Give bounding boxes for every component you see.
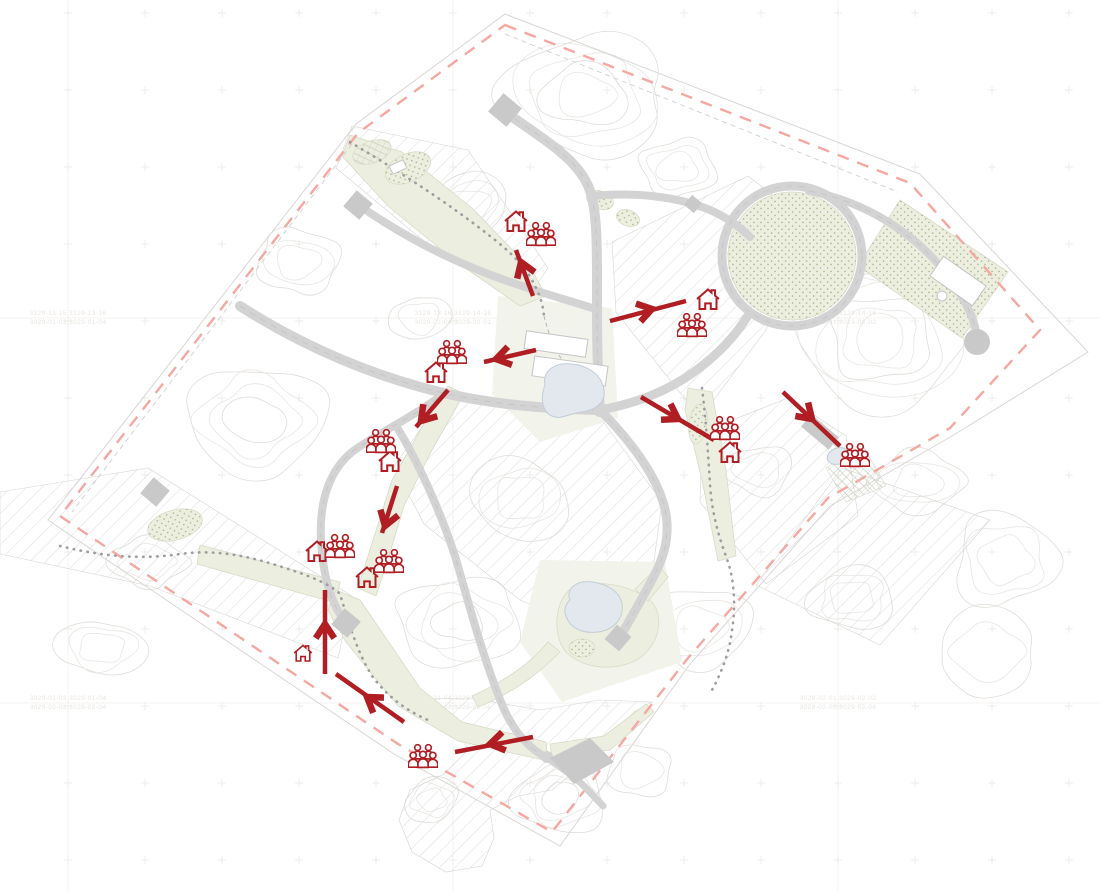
watermark-text: 3029-01-03 3029-01-04: [30, 695, 107, 702]
grid-cross: [603, 240, 611, 248]
grid-cross: [988, 856, 996, 864]
contour-line: [187, 372, 330, 481]
watermark-text: 3029-02-01 3029-02-02: [800, 695, 877, 702]
house-icon: [379, 452, 401, 472]
contour-line: [395, 577, 521, 668]
grid-cross: [449, 86, 457, 94]
people-group-icon: [408, 745, 437, 768]
grid-cross: [834, 779, 842, 787]
grid-cross: [141, 9, 149, 17]
contour-line: [422, 593, 498, 649]
grid-cross: [295, 86, 303, 94]
grid-cross: [141, 86, 149, 94]
people-group-icon: [325, 535, 354, 558]
grid-cross: [526, 9, 534, 17]
grid-cross: [834, 86, 842, 94]
grid-cross: [988, 625, 996, 633]
watermark-text: 3029-02-05 3029-02-06: [800, 704, 877, 711]
grid-cross: [680, 471, 688, 479]
grid-cross: [757, 9, 765, 17]
grid-cross: [218, 9, 226, 17]
grid-cross: [141, 856, 149, 864]
grid-cross: [141, 163, 149, 171]
planting-patch-texture: [614, 206, 642, 229]
grid-cross: [680, 856, 688, 864]
grid-cross: [911, 625, 919, 633]
contour-line: [191, 370, 318, 468]
grid-cross: [372, 240, 380, 248]
planting-circle-texture: [728, 192, 856, 320]
grid-cross: [218, 779, 226, 787]
people-group-icon: [526, 223, 555, 246]
contour-line: [857, 313, 903, 363]
grid-cross: [64, 625, 72, 633]
grid-cross: [1065, 856, 1073, 864]
grid-cross: [218, 163, 226, 171]
grid-cross: [834, 394, 842, 402]
grid-cross: [757, 856, 765, 864]
site-plan-drawing: 3129-13-15 3129-13-163029-01-03 3029-01-…: [0, 0, 1100, 891]
grid-cross: [141, 625, 149, 633]
people-group-icon: [437, 341, 466, 364]
grid-cross: [1065, 548, 1073, 556]
grid-cross: [603, 9, 611, 17]
contour-line: [656, 151, 699, 181]
watermark-text: 3029-01-04 3029-02-01: [415, 319, 492, 326]
grid-cross: [295, 9, 303, 17]
contour-line: [977, 535, 1035, 586]
grid-cross: [680, 548, 688, 556]
grid-cross: [449, 9, 457, 17]
grid-cross: [64, 779, 72, 787]
grid-cross: [1065, 9, 1073, 17]
grid-cross: [988, 394, 996, 402]
site-plan-canvas: 3129-13-15 3129-13-163029-01-03 3029-01-…: [0, 0, 1100, 891]
grid-cross: [64, 394, 72, 402]
grid-cross: [449, 625, 457, 633]
contour-line: [222, 397, 287, 443]
house-icon: [294, 645, 312, 661]
grid-cross: [1065, 779, 1073, 787]
watermark-text: 3029-02-03 3029-02-04: [30, 704, 107, 711]
grid-cross: [372, 471, 380, 479]
contour-line: [492, 31, 659, 160]
culdesac-circle: [964, 329, 990, 355]
road-junction: [541, 751, 553, 763]
grid-cross: [218, 86, 226, 94]
grid-cross: [911, 86, 919, 94]
grid-cross: [295, 471, 303, 479]
grid-cross: [988, 779, 996, 787]
setback-line: [72, 144, 352, 512]
grid-cross: [141, 240, 149, 248]
grid-cross: [757, 86, 765, 94]
grid-cross: [372, 394, 380, 402]
grid-cross: [64, 9, 72, 17]
grid-cross: [1065, 394, 1073, 402]
contour-line: [646, 146, 709, 190]
grid-cross: [603, 856, 611, 864]
grid-cross: [680, 9, 688, 17]
grid-cross: [295, 163, 303, 171]
grid-cross: [1065, 471, 1073, 479]
contour-line: [257, 227, 342, 295]
watermark-text: 3129-13-15 3129-13-16: [30, 310, 107, 317]
contour-line: [843, 308, 916, 368]
grid-cross: [911, 163, 919, 171]
grid-cross: [64, 471, 72, 479]
grid-cross: [680, 779, 688, 787]
grid-cross: [372, 86, 380, 94]
watermark-text: 3129-13-16 3129-14-15: [415, 310, 492, 317]
grid-cross: [680, 163, 688, 171]
house-icon: [425, 363, 447, 383]
contour-line: [537, 61, 628, 125]
grid-cross: [295, 856, 303, 864]
grid-cross: [1065, 86, 1073, 94]
building-detail: [937, 291, 947, 301]
grid-cross: [295, 779, 303, 787]
contour-line: [621, 751, 665, 789]
grid-cross: [218, 240, 226, 248]
house-icon: [306, 542, 328, 562]
grid-cross: [988, 9, 996, 17]
grid-cross: [1065, 163, 1073, 171]
contour-line: [942, 604, 1032, 698]
grid-cross: [64, 86, 72, 94]
grid-cross: [218, 471, 226, 479]
grid-cross: [603, 163, 611, 171]
grid-cross: [988, 86, 996, 94]
grid-cross: [988, 163, 996, 171]
grid-cross: [372, 779, 380, 787]
contour-line: [277, 245, 322, 280]
grid-cross: [834, 856, 842, 864]
contour-line: [607, 745, 671, 797]
grid-cross: [1065, 240, 1073, 248]
grid-cross: [372, 9, 380, 17]
contour-line: [948, 622, 1027, 683]
grid-cross: [1065, 625, 1073, 633]
grid-cross: [64, 163, 72, 171]
grid-cross: [911, 856, 919, 864]
grid-cross: [218, 856, 226, 864]
contour-line: [529, 53, 640, 137]
grid-cross: [757, 163, 765, 171]
grid-cross: [911, 471, 919, 479]
grid-cross: [141, 779, 149, 787]
grid-cross: [295, 548, 303, 556]
planting-patch-texture: [569, 639, 595, 657]
watermark-text: 3029-01-03 3029-01-04: [30, 319, 107, 326]
grid-cross: [680, 625, 688, 633]
grid-cross: [757, 779, 765, 787]
hatch-area: [0, 468, 352, 658]
grid-cross: [988, 471, 996, 479]
grid-cross: [603, 86, 611, 94]
grid-cross: [680, 86, 688, 94]
grid-cross: [64, 856, 72, 864]
grid-cross: [911, 779, 919, 787]
grid-cross: [834, 9, 842, 17]
grid-cross: [757, 394, 765, 402]
contour-line: [53, 622, 149, 675]
contour-line: [80, 633, 125, 662]
contour-line: [559, 72, 617, 117]
grid-cross: [757, 625, 765, 633]
grid-cross: [64, 240, 72, 248]
grid-cross: [372, 856, 380, 864]
grid-cross: [526, 856, 534, 864]
grid-cross: [911, 9, 919, 17]
grid-cross: [526, 163, 534, 171]
grid-cross: [988, 548, 996, 556]
